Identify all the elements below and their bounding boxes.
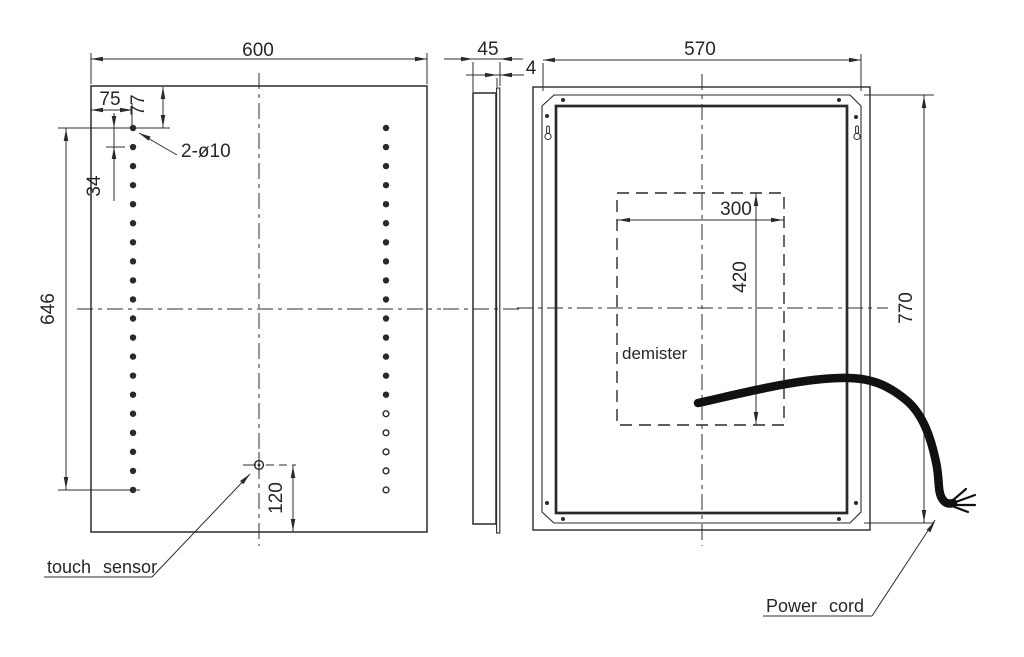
back-view-dimensions — [543, 54, 935, 616]
led-dot — [130, 201, 136, 207]
sensor-callout-leader — [152, 474, 250, 577]
side-view — [443, 88, 523, 533]
dimension-arrowhead — [771, 218, 783, 223]
dimension-arrowhead — [618, 218, 630, 223]
led-dot — [383, 258, 389, 264]
screw-dot — [561, 98, 565, 102]
dimension-arrowhead — [138, 131, 151, 141]
dimension-arrowhead — [500, 73, 512, 78]
keyhole-mount-right-line — [854, 133, 860, 139]
screw-dot — [837, 517, 841, 521]
dimension-arrowhead — [291, 519, 296, 531]
led-dot — [383, 125, 389, 131]
dimension-arrowhead — [500, 57, 512, 62]
dim-hole-offset-top-label: 77 — [128, 94, 149, 115]
dimension-arrowhead — [485, 73, 497, 78]
led-dot-open — [383, 430, 389, 436]
screw-dot — [545, 114, 549, 118]
led-dot — [130, 487, 136, 493]
touch-sensor-symbol-line — [258, 464, 261, 467]
led-dot — [383, 144, 389, 150]
led-dot-open — [383, 487, 389, 493]
led-dot — [130, 334, 136, 340]
led-dot — [383, 220, 389, 226]
led-dot-open — [383, 411, 389, 417]
dim-back-height-label: 770 — [896, 292, 917, 324]
led-dot — [130, 296, 136, 302]
dimension-arrowhead — [754, 194, 759, 206]
screw-dot — [545, 501, 549, 505]
dim-demister-height-label: 420 — [730, 261, 751, 293]
led-dot — [130, 182, 136, 188]
led-dot — [130, 468, 136, 474]
keyhole-mount-left-line — [547, 126, 550, 134]
led-dot — [383, 277, 389, 283]
led-dot — [383, 353, 389, 359]
dimension-arrowhead — [922, 96, 927, 108]
led-dot — [383, 392, 389, 398]
keyhole-mount-right-line — [856, 126, 859, 134]
led-dot-open — [383, 468, 389, 474]
front-view-dimensions — [44, 53, 427, 577]
led-dot — [130, 353, 136, 359]
dimension-arrowhead — [927, 520, 937, 533]
led-dot — [383, 239, 389, 245]
touch-sensor-label: touch sensor — [47, 557, 157, 577]
led-dot — [130, 163, 136, 169]
dimension-arrowhead — [64, 129, 69, 141]
dimension-arrowhead — [64, 477, 69, 489]
led-dot — [383, 296, 389, 302]
dim-front-width-label: 600 — [242, 40, 274, 61]
led-dot — [130, 392, 136, 398]
led-dot — [130, 277, 136, 283]
led-dot — [383, 182, 389, 188]
led-dot — [383, 201, 389, 207]
keyhole-mount-right — [854, 126, 860, 140]
dimension-arrowhead — [91, 57, 103, 62]
dimension-arrowhead — [112, 116, 117, 128]
led-dot-open — [383, 449, 389, 455]
dim-depth-label: 45 — [477, 39, 498, 60]
led-dot — [383, 163, 389, 169]
back-view — [517, 74, 888, 546]
led-dot — [130, 258, 136, 264]
side-glass-outline — [497, 88, 500, 533]
dim-demister-width-label: 300 — [720, 199, 752, 220]
screw-dot — [837, 98, 841, 102]
led-dot — [383, 334, 389, 340]
dim-hole-span-label: 646 — [38, 293, 59, 325]
dimension-arrowhead — [112, 147, 117, 159]
led-dot — [130, 430, 136, 436]
screw-dot — [854, 501, 858, 505]
dimension-arrowhead — [543, 58, 555, 63]
led-dot — [130, 411, 136, 417]
dimension-arrowhead — [849, 58, 861, 63]
power-cord-leader — [872, 520, 935, 616]
dimension-arrowhead — [161, 115, 166, 127]
led-dot — [130, 125, 136, 131]
mirror-technical-drawing: 600 75 77 34 646 2-ø10 120 touch sensor … — [0, 0, 1024, 657]
dim-sensor-offset-label: 120 — [266, 482, 287, 514]
dim-back-width-label: 570 — [684, 39, 716, 60]
keyhole-mount-left — [545, 126, 551, 140]
led-dot — [130, 449, 136, 455]
dimension-arrowhead — [415, 57, 427, 62]
power-cord-cable — [698, 378, 953, 504]
power-cord-wire-ends-line — [952, 506, 968, 512]
screw-dot — [561, 517, 565, 521]
dimension-arrowhead — [922, 510, 927, 522]
led-dot — [130, 372, 136, 378]
led-dot — [130, 315, 136, 321]
demister-label: demister — [622, 344, 688, 363]
dim-glass-thickness-label: 4 — [526, 58, 537, 79]
power-cord-label: Power cord — [766, 596, 864, 616]
keyhole-mount-left-line — [545, 133, 551, 139]
dimension-arrowhead — [291, 466, 296, 478]
technical-drawing-canvas: 600 75 77 34 646 2-ø10 120 touch sensor … — [0, 0, 1024, 657]
led-dot — [383, 315, 389, 321]
led-dot — [383, 372, 389, 378]
holes-callout-label: 2-ø10 — [181, 141, 231, 162]
dimension-arrowhead — [754, 412, 759, 424]
led-dot — [130, 220, 136, 226]
dim-hole-offset-left-label: 75 — [99, 89, 120, 110]
dimension-arrowhead — [461, 57, 473, 62]
screw-dot — [854, 115, 858, 119]
dimension-arrowhead — [161, 87, 166, 99]
power-cord — [698, 378, 975, 512]
led-dot — [130, 144, 136, 150]
dim-hole-pitch-label: 34 — [84, 175, 105, 197]
led-dot — [130, 239, 136, 245]
